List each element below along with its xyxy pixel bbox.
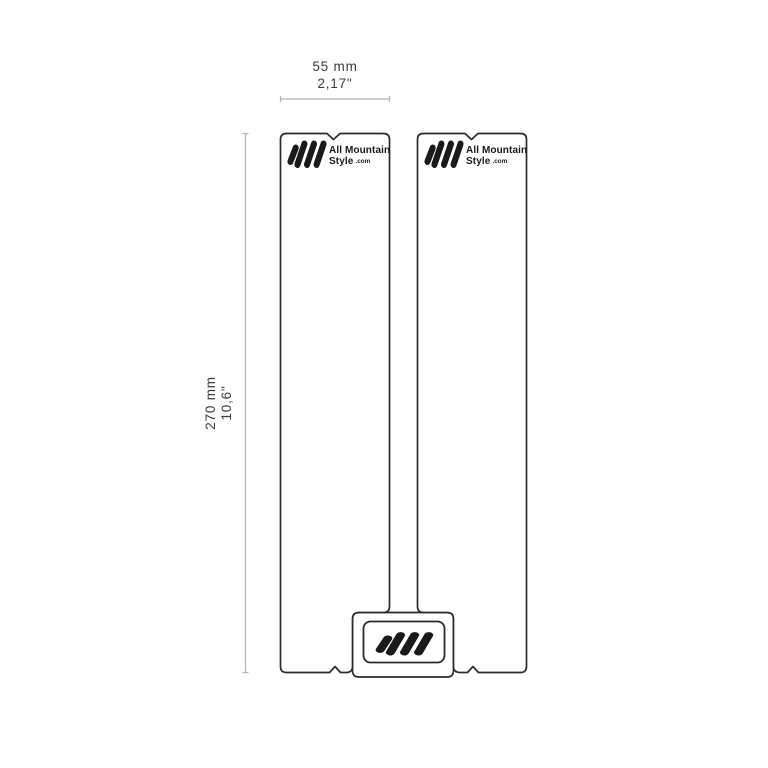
left-strip: All Mountain Style .com <box>281 134 391 673</box>
bottom-bridge <box>353 613 454 678</box>
width-imperial-label: 2,17" <box>317 76 352 91</box>
right-strip-outline <box>418 134 527 673</box>
logo-line1: All Mountain <box>466 145 527 156</box>
height-metric-label: 270 mm <box>203 376 218 430</box>
width-dimension: 55 mm 2,17" <box>281 59 390 102</box>
logo-line2: Style <box>466 156 491 167</box>
right-strip: All Mountain Style .com <box>418 134 528 673</box>
logo-line2: Style <box>329 156 354 167</box>
logo-suffix: .com <box>356 158 371 165</box>
logo-suffix: .com <box>493 158 508 165</box>
badge <box>364 622 445 663</box>
height-imperial-label: 10,6" <box>219 385 234 420</box>
logo-line1: All Mountain <box>329 145 390 156</box>
left-strip-outline <box>281 134 390 673</box>
product-diagram: 55 mm 2,17" 270 mm 10,6" <box>0 0 768 768</box>
height-dimension: 270 mm 10,6" <box>203 134 249 673</box>
frame-guard-diagram-svg: 55 mm 2,17" 270 mm 10,6" <box>0 0 768 768</box>
width-metric-label: 55 mm <box>312 59 357 74</box>
